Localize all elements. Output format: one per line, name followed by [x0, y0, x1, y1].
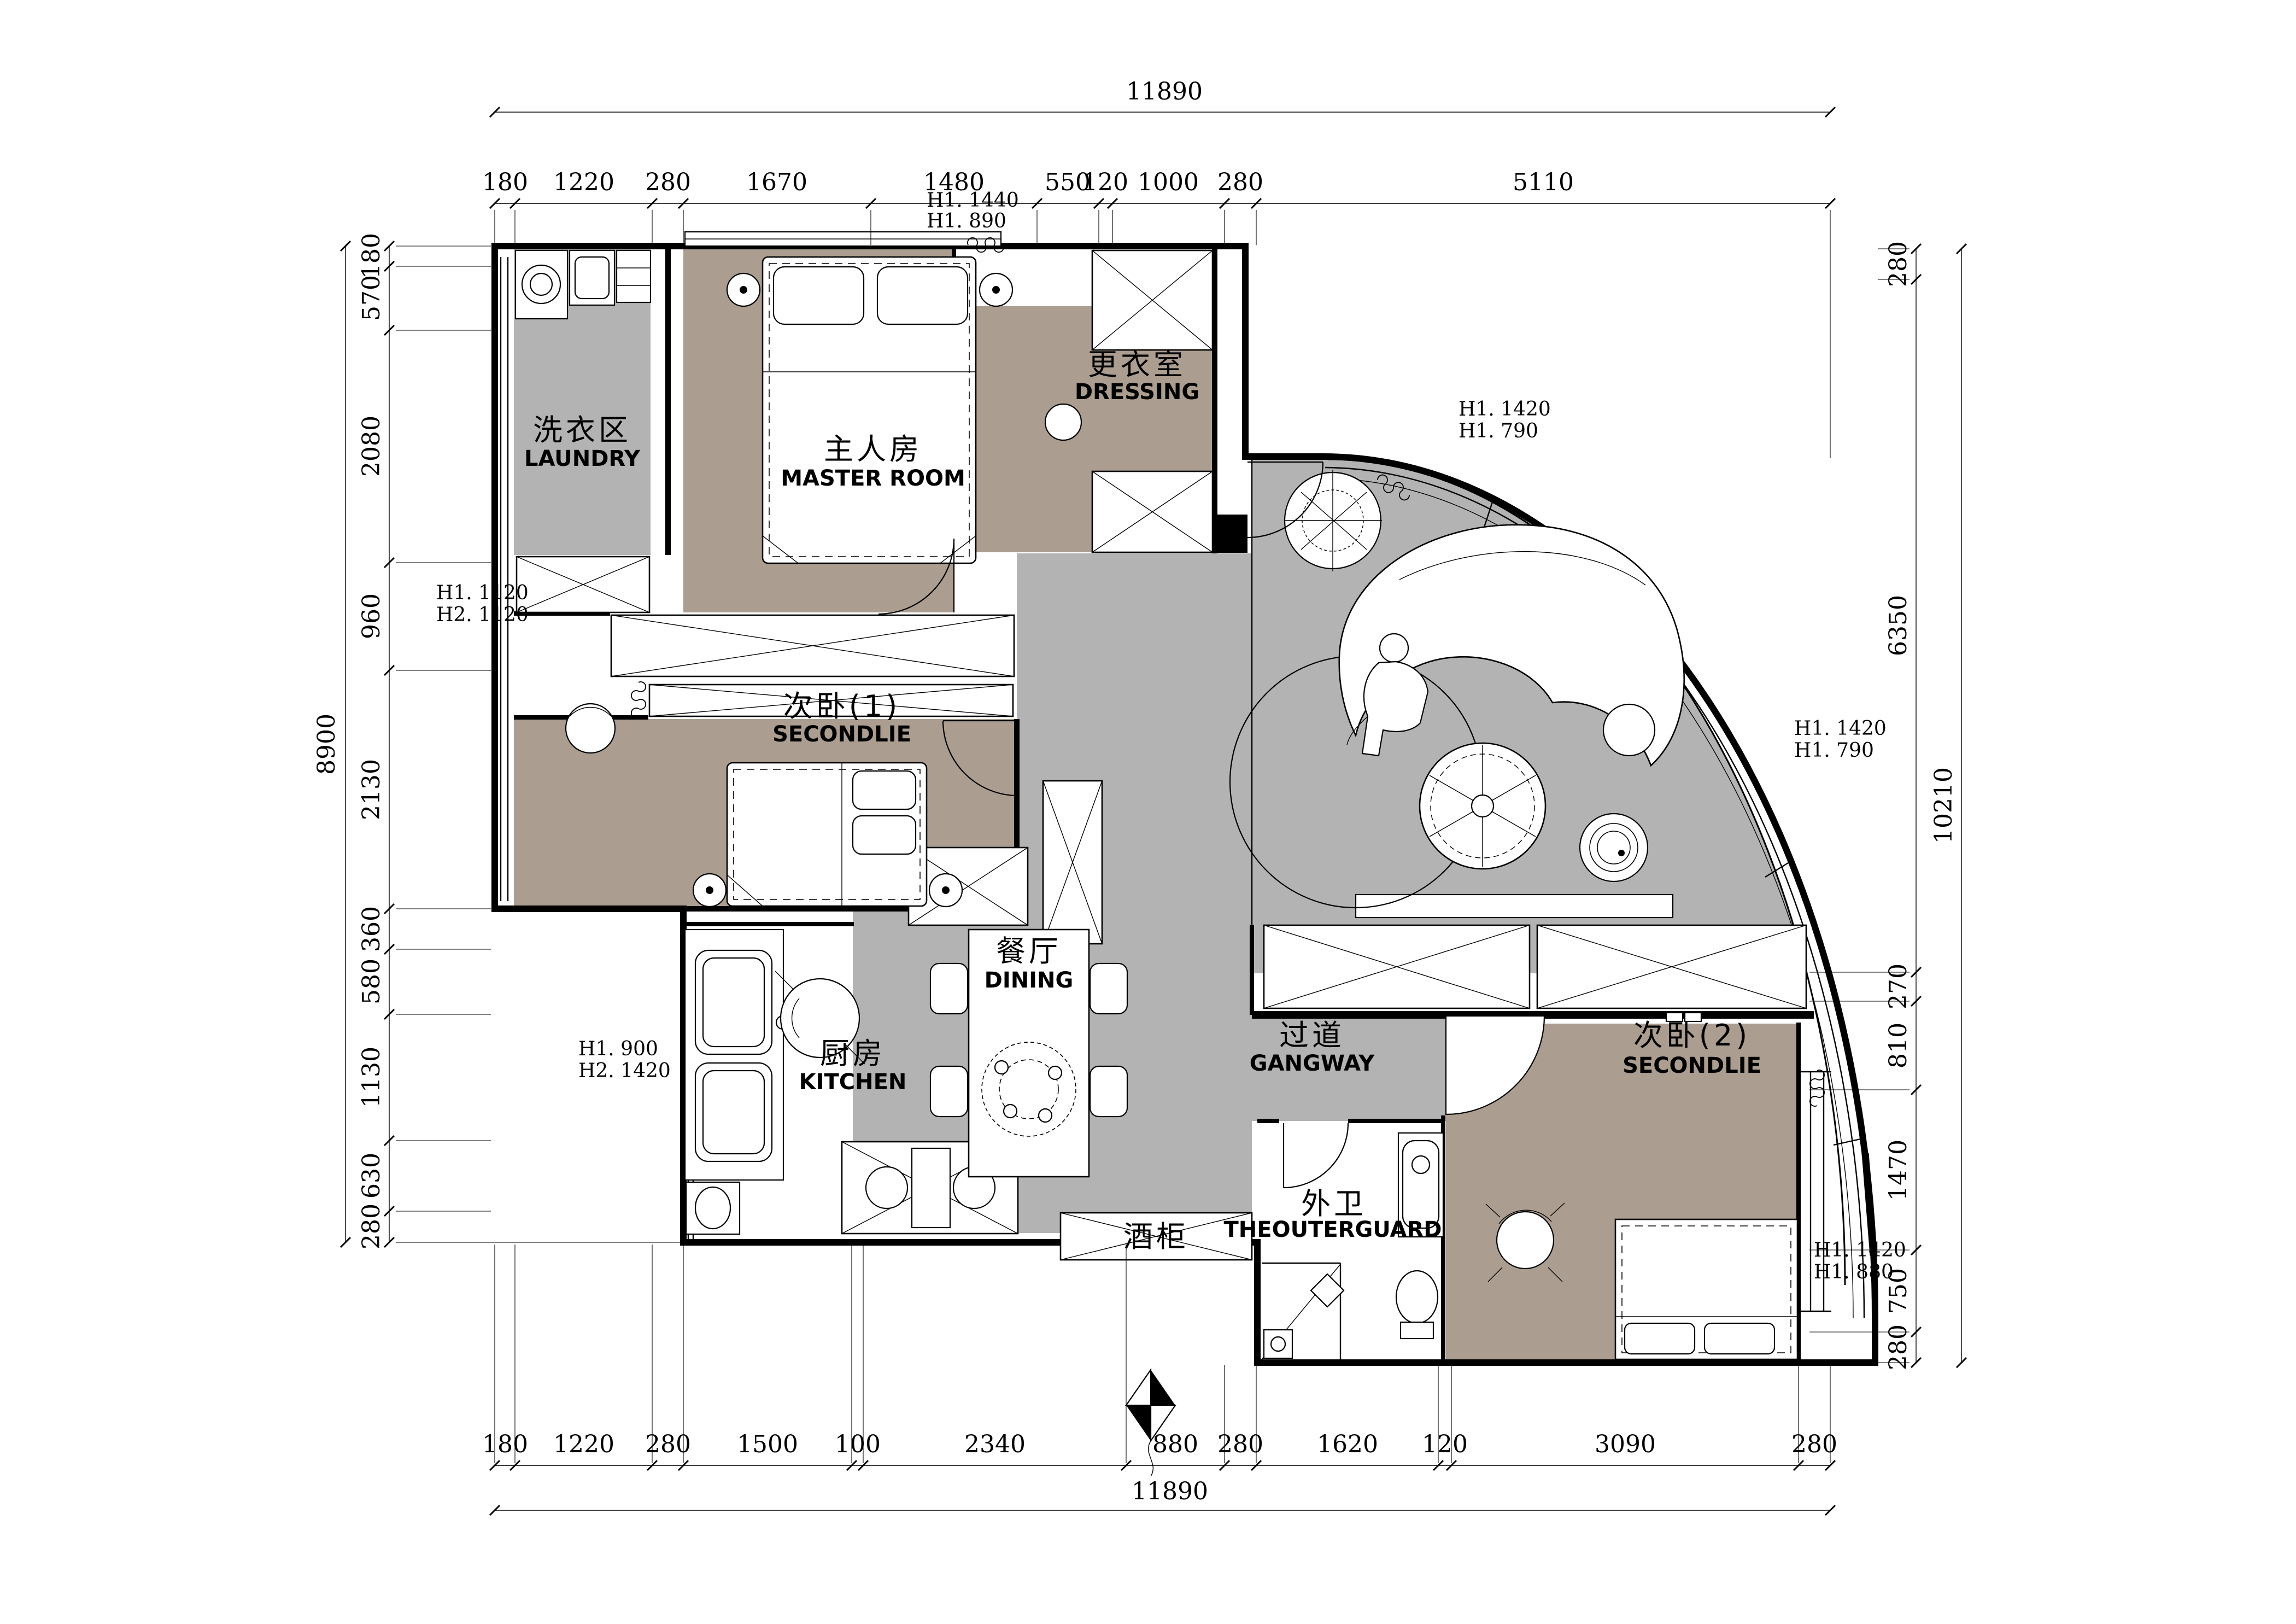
room-label-laundry-cn: 洗衣区: [533, 413, 631, 447]
dim-total: 10210: [1930, 767, 1958, 844]
dim-value: 280: [1884, 1324, 1912, 1370]
room-label-master-en: MASTER ROOM: [781, 466, 965, 491]
toilet-tank: [1401, 1322, 1433, 1339]
dim-total: 11890: [1126, 78, 1203, 106]
leaf-dot: [1049, 1066, 1062, 1079]
sofa-end-stool: [1603, 704, 1655, 756]
room-label-second2-cn: 次卧(2): [1633, 1018, 1751, 1053]
pillow-icon: [877, 267, 968, 324]
dining-chair: [930, 1066, 968, 1117]
side-table-dot: [1618, 850, 1625, 856]
nightstand-dot: [942, 886, 950, 894]
nightstand-dot: [740, 286, 747, 294]
height-note: H1. 1420: [1814, 1239, 1906, 1261]
dim-value: 270: [1884, 963, 1912, 1009]
height-note: H1. 900: [578, 1038, 658, 1060]
chair-icon: [566, 704, 615, 753]
dim-value: 180: [482, 1430, 528, 1458]
dim-value: 120: [1422, 1430, 1468, 1458]
stove-center: [912, 1148, 950, 1228]
floor-plan: 11890 180 1220 280 1670 1480 550 120 100…: [0, 0, 2296, 1624]
dim-value: 1130: [358, 1047, 385, 1108]
burner-icon: [866, 1167, 907, 1208]
height-note: H1. 790: [1794, 739, 1874, 762]
leaf-dot: [995, 1061, 1008, 1074]
dim-value: 180: [482, 168, 528, 196]
toilet-icon: [1396, 1271, 1438, 1323]
pillow-icon: [853, 771, 916, 809]
washer-drum-icon: [530, 273, 552, 295]
height-note: H1. 1120: [436, 582, 529, 604]
pillow-icon: [1705, 1323, 1774, 1354]
dim-value: 810: [1884, 1023, 1912, 1068]
dim-value: 5110: [1513, 168, 1574, 196]
dining-chair: [1090, 963, 1127, 1014]
dim-value: 1500: [737, 1430, 798, 1458]
dim-value: 280: [645, 168, 691, 196]
washer-drum-icon: [695, 1187, 730, 1229]
sink-inner: [703, 958, 764, 1047]
dim-value: 280: [1791, 1430, 1837, 1458]
nightstand-dot: [992, 286, 1000, 294]
laundry-shelf: [617, 250, 651, 302]
dim-value: 280: [645, 1430, 691, 1458]
leaf-dot: [1039, 1109, 1052, 1122]
height-note: H1. 880: [1814, 1261, 1894, 1283]
room-label-dressing-en: DRESSING: [1075, 379, 1199, 405]
room-label-dressing-cn: 更衣室: [1088, 347, 1186, 382]
dim-value: 120: [1082, 168, 1128, 196]
dim-value: 960: [358, 593, 385, 639]
room-label-kitchen-en: KITCHEN: [799, 1070, 907, 1095]
dim-value: 1220: [553, 168, 614, 196]
dim-total: 8900: [313, 714, 341, 775]
room-label-outerguard-cn: 外卫: [1301, 1187, 1367, 1221]
dim-value: 2080: [358, 416, 385, 477]
height-note: H1. 790: [1459, 420, 1538, 442]
room-label-second1-en: SECONDLIE: [772, 722, 911, 747]
pillow-icon: [774, 267, 864, 324]
wall-chunk-entry: [1213, 515, 1247, 553]
height-note: H1. 1420: [1459, 398, 1551, 420]
room-label-second2-en: SECONDLIE: [1623, 1053, 1761, 1078]
room-label-laundry-en: LAUNDRY: [524, 446, 641, 471]
dim-value: 880: [1152, 1430, 1198, 1458]
dim-value: 360: [358, 906, 385, 952]
dim-value: 1000: [1138, 168, 1199, 196]
table-hub: [1472, 795, 1493, 817]
room-label-second1-cn: 次卧(1): [783, 689, 901, 723]
height-note: H2. 1120: [436, 604, 529, 626]
room-label-outerguard-en: THEOUTERGUARD: [1223, 1217, 1442, 1242]
dim-value: 2340: [964, 1430, 1026, 1458]
height-note: H1. 1440: [927, 189, 1019, 212]
height-note: H2. 1420: [578, 1060, 671, 1082]
drain-icon: [1271, 1337, 1285, 1351]
dim-value: 180: [358, 233, 385, 279]
dining-chair: [930, 963, 968, 1014]
room-label-gangway-cn: 过道: [1279, 1018, 1345, 1053]
dim-value: 1470: [1884, 1140, 1912, 1201]
room-label-gangway-en: GANGWAY: [1250, 1051, 1375, 1076]
faucet-icon: [1412, 1156, 1430, 1173]
dim-value: 1670: [746, 168, 807, 196]
nightstand-dot: [706, 886, 713, 894]
dim-value: 580: [358, 959, 385, 1004]
vanity-basin: [1403, 1141, 1439, 1228]
dim-value: 280: [1217, 1430, 1263, 1458]
dim-value: 6350: [1884, 595, 1912, 656]
pillow-icon: [853, 816, 916, 854]
dim-value: 630: [358, 1153, 385, 1199]
dim-total: 11890: [1132, 1477, 1208, 1505]
stool-icon: [1045, 404, 1081, 440]
leaf-dot: [1004, 1105, 1017, 1118]
chair-icon: [1497, 1212, 1554, 1269]
sink-basin-icon: [575, 257, 609, 299]
dim-value: 1620: [1317, 1430, 1378, 1458]
dim-value: 280: [1884, 241, 1912, 287]
height-note: H1. 1420: [1794, 717, 1887, 740]
height-note: H1. 890: [927, 210, 1006, 232]
dim-value: 100: [835, 1430, 881, 1458]
dim-value: 570: [358, 275, 385, 321]
room-label-kitchen-cn: 厨房: [820, 1036, 886, 1071]
dim-value: 280: [1217, 168, 1263, 196]
room-label-dining-en: DINING: [985, 968, 1074, 993]
dim-value: 3090: [1595, 1430, 1656, 1458]
room-label-wine-cn: 酒柜: [1123, 1219, 1189, 1254]
pillow-icon: [1625, 1323, 1695, 1354]
dim-value: 2130: [358, 759, 385, 820]
room-label-dining-cn: 餐厅: [996, 934, 1062, 968]
dim-value: 280: [358, 1204, 385, 1249]
dining-chair: [1090, 1066, 1127, 1117]
sink-inner: [703, 1071, 764, 1154]
room-label-master-cn: 主人房: [824, 432, 922, 466]
dim-value: 1220: [553, 1430, 614, 1458]
